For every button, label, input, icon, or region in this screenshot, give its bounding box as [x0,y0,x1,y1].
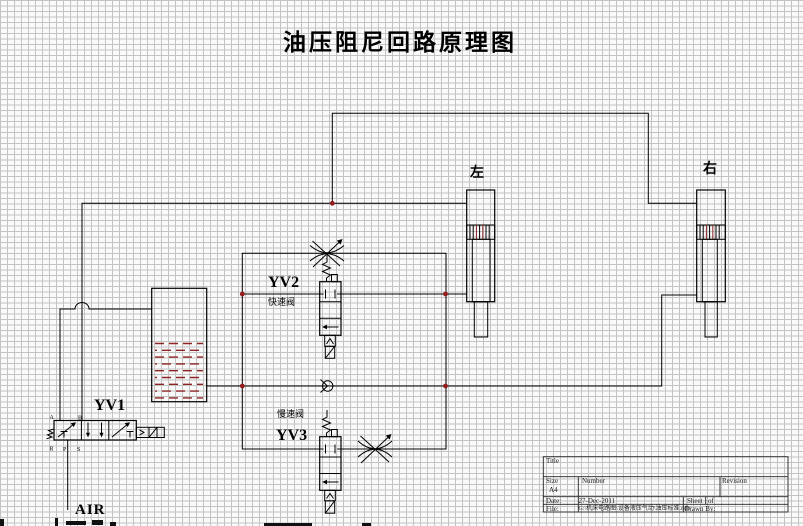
junction-dot [240,384,245,389]
port-p: P [63,447,67,453]
port-a: A [50,415,55,421]
cylinder-right-symbol[interactable] [697,190,726,337]
piston-hatch [470,225,489,239]
solenoid-diagonal [149,427,157,437]
titleblock-title-label: Title [546,458,559,465]
blocked-port-ticks [320,445,341,454]
titleblock-date-value: 27-Dec-2011 [579,498,616,505]
solenoid-diagonal [325,501,334,513]
air-supply-label[interactable]: AIR [75,503,106,518]
cylinder-right-label[interactable]: 右 [703,163,717,177]
cylinder-piston [697,225,726,239]
piston-hatch [700,225,719,239]
yv3-caption[interactable]: 慢速阀 [277,410,304,419]
cylinder-rod-lower [474,302,487,337]
yv1-valve-symbol[interactable]: A B R P S [47,415,165,453]
titleblock-number-label: Number [582,478,605,485]
titleblock-of-label: of [708,498,714,505]
schematic-canvas: A B R P S 油压阻尼回路原理图 左 右 YV2 快速阀 慢速阀 YV3 … [0,0,803,526]
titleblock-date-label: Date: [546,498,561,505]
titleblock-size-label: Size [546,478,558,485]
cylinder-rod-upper [702,239,717,301]
port-r: R [50,447,54,453]
detent-box [325,490,336,501]
cylinder-barrel [467,190,495,302]
titleblock-sheet-label: Sheet [687,498,703,505]
titleblock-file-label: File: [546,506,559,513]
cylinder-piston [467,225,495,239]
yv3-valve-symbol[interactable] [320,410,341,513]
pilot-box [332,275,338,282]
blocked-port-ticks [320,290,341,299]
titleblock-file-value: G:\机床电路图\设备液压气动\油压标准.ddb [579,506,691,512]
return-spring [323,255,331,282]
schematic-linework: A B R P S [0,0,803,526]
solenoid-diagonal [325,346,334,358]
yv3-label[interactable]: YV3 [276,428,307,444]
pipe-top-loop-right-cylinder [332,113,696,203]
titleblock-drawnby-label: Drawn By: [685,506,716,513]
titleblock-size-value: A4 [549,487,558,494]
yv2-caption[interactable]: 快速阀 [268,298,295,307]
cylinder-barrel [697,190,726,302]
cylinder-left-label[interactable]: 左 [470,167,484,181]
yv2-label[interactable]: YV2 [268,275,299,291]
junction-dots [240,201,448,388]
return-spring [323,410,331,437]
yv2-valve-symbol[interactable] [320,255,341,358]
oil-tank[interactable] [152,288,207,401]
return-spring [47,429,55,439]
junction-dot [443,384,448,389]
pipe-network[interactable] [60,113,697,510]
port-b: B [78,416,82,422]
tank-liquid-hatch [155,344,203,398]
junction-dot [240,292,245,297]
pilot-box [332,430,338,437]
port-s: S [77,447,80,453]
cylinder-rod-upper [472,239,490,301]
titleblock-revision-label: Revision [722,478,747,485]
page-title[interactable]: 油压阻尼回路原理图 [283,31,517,54]
pipe-right-cylinder-bottom [446,295,697,386]
detent-box [325,335,336,346]
yv1-label[interactable]: YV1 [94,398,125,414]
cylinder-rod-lower [705,302,717,337]
cylinder-left-symbol[interactable] [467,190,495,337]
junction-dot [443,292,448,297]
pipe-b-to-left-cylinder [82,203,467,420]
junction-dot [330,201,335,206]
